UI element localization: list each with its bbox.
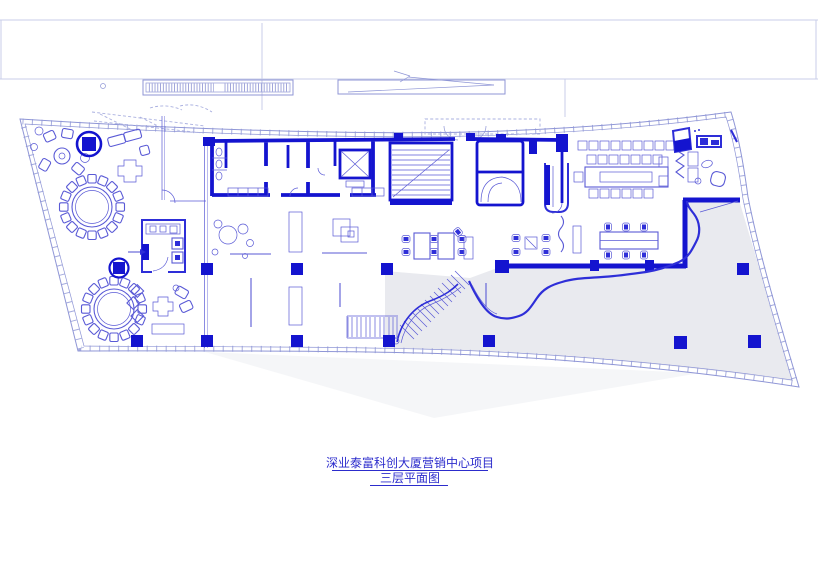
- ramp-arrow: [338, 71, 505, 94]
- caption: 深业泰富科创大厦营销中心项目 三层平面图: [326, 455, 494, 486]
- exhibition-bubbles: [212, 220, 254, 259]
- building-core: [203, 133, 568, 196]
- drawing-subtitle: 三层平面图: [380, 471, 440, 485]
- workstation-cluster-a: [402, 233, 466, 259]
- pantry-room: [128, 220, 185, 275]
- curtain-zigzag: [676, 150, 684, 178]
- drawing-title: 深业泰富科创大厦营销中心项目: [326, 455, 494, 470]
- fire-hydrant-marker-1: [77, 132, 101, 156]
- elevator-shaft: [340, 150, 370, 187]
- facade-shadow: [205, 352, 700, 418]
- round-banquet-table-2: [82, 277, 147, 342]
- equipment-panel: [697, 136, 721, 147]
- round-banquet-table-1: [60, 175, 125, 240]
- drawing-sheet: 深业泰富科创大厦营销中心项目 三层平面图: [0, 0, 818, 573]
- workstation-cluster-c: [573, 223, 658, 259]
- escape-shaft: [477, 141, 523, 205]
- reception-desk: [545, 163, 568, 212]
- workstation-cluster-b: [512, 235, 550, 256]
- curtain-wave: [559, 216, 564, 252]
- display-shelf-2: [289, 287, 302, 325]
- conference-table: [574, 155, 668, 198]
- upper-reference-lines: [0, 20, 818, 117]
- display-shelf-1: [289, 212, 302, 252]
- fire-hydrant-marker-2: [110, 259, 129, 278]
- stair-shaft: [390, 143, 452, 203]
- floor-plan-svg: 深业泰富科创大厦营销中心项目 三层平面图: [0, 0, 818, 573]
- pantry-counter: [673, 128, 700, 152]
- model-desk: [333, 219, 358, 242]
- toilet-fixtures: [212, 148, 384, 196]
- roof-louvre: [143, 80, 293, 95]
- sofa-set: [107, 129, 150, 182]
- tv-cabinet: [152, 324, 184, 334]
- lounge-chair: [709, 170, 726, 187]
